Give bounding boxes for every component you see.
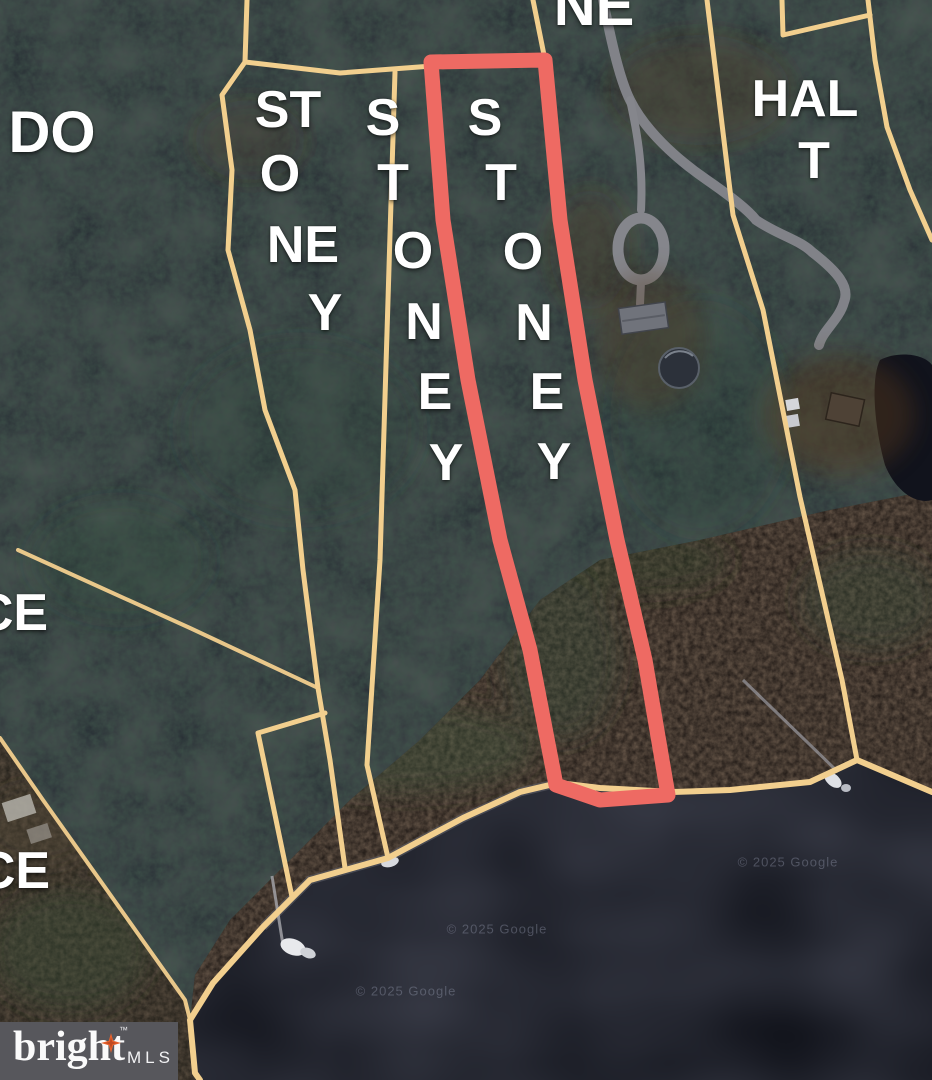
- google-watermark: © 2025 Google: [738, 855, 839, 870]
- parcel1-letter: Y: [308, 287, 343, 339]
- parcel2-letter: E: [418, 366, 453, 418]
- parcel3-letter: O: [503, 226, 543, 278]
- parcel-line-west-top: [245, 0, 247, 62]
- road-label-ce-lower: CE: [0, 845, 50, 897]
- parcel2-letter: N: [405, 296, 443, 348]
- parcel3-letter: Y: [537, 436, 572, 488]
- parcel3-letter: T: [485, 157, 517, 209]
- google-watermark: © 2025 Google: [356, 984, 457, 999]
- parcel2-letter: S: [366, 92, 401, 144]
- road-label-do: DO: [9, 104, 96, 162]
- parcel2-letter: T: [377, 157, 409, 209]
- parcel3-letter: S: [468, 92, 503, 144]
- parcel2-letter: O: [393, 225, 433, 277]
- parcel2-letter: Y: [429, 437, 464, 489]
- parcel1-letter: ST: [255, 84, 321, 136]
- trademark-symbol: ™: [119, 1025, 128, 1035]
- star-icon: [101, 1033, 121, 1053]
- parcel3-letter: N: [515, 297, 553, 349]
- map-canvas: [0, 0, 932, 1080]
- shed: [785, 398, 800, 411]
- road-label-hal: HAL: [752, 73, 859, 125]
- boat: [841, 784, 851, 792]
- parcel1-letter: O: [260, 148, 300, 200]
- road-label-ne: NE: [554, 0, 635, 35]
- mls-text: MLS: [127, 1048, 174, 1068]
- parcel1-letter: NE: [267, 219, 339, 271]
- satellite-parcel-map: DO ST O NE Y S T O N E Y S T O N E Y NE …: [0, 0, 932, 1080]
- parcel3-letter: E: [530, 366, 565, 418]
- google-watermark: © 2025 Google: [447, 922, 548, 937]
- dome-structure: [659, 348, 699, 388]
- brightmls-logo: bright ™ MLS: [0, 1022, 178, 1080]
- road-label-ce-upper: CE: [0, 587, 48, 639]
- road-label-t: T: [798, 135, 830, 187]
